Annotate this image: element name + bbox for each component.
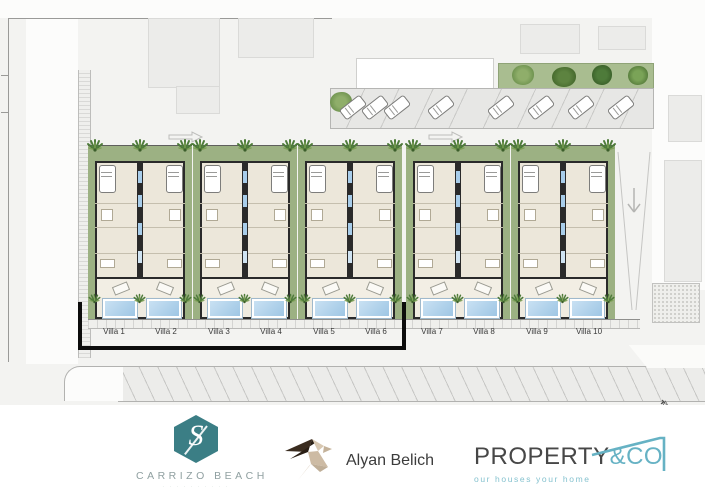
car-icon <box>204 165 221 193</box>
palm-tree-icon <box>496 293 511 308</box>
neighbor-building <box>668 95 702 142</box>
car-icon <box>309 165 326 193</box>
villa-label: Villa 9 <box>526 327 548 336</box>
neighbor-building <box>148 18 220 88</box>
villa-label: Villa 7 <box>421 327 443 336</box>
sun-lounger-icon <box>156 281 174 295</box>
tree-icon <box>512 65 534 85</box>
swimming-pool <box>357 299 391 318</box>
villa-label: Villa 3 <box>208 327 230 336</box>
car-icon <box>484 165 501 193</box>
neighbor-building <box>520 24 580 54</box>
sofa-icon <box>377 259 392 268</box>
branding-footer: S CARRIZO BEACH · · · · · · · · · · Alya… <box>0 405 705 498</box>
table-icon <box>101 209 113 221</box>
palm-tree-icon <box>555 293 570 308</box>
sofa-icon <box>418 259 433 268</box>
driveway-cut <box>612 345 705 368</box>
sun-lounger-icon <box>535 281 553 295</box>
sun-lounger-icon <box>217 281 235 295</box>
palm-tree-icon <box>85 138 105 158</box>
palm-tree-icon <box>87 293 102 308</box>
palm-tree-icon <box>598 138 618 158</box>
sun-lounger-icon <box>474 281 492 295</box>
palm-tree-icon <box>192 293 207 308</box>
swimming-pool <box>147 299 181 318</box>
sun-lounger-icon <box>261 281 279 295</box>
palm-tree-icon <box>405 293 420 308</box>
palm-tree-icon <box>237 293 252 308</box>
tree-icon <box>628 66 648 85</box>
car-icon <box>99 165 116 193</box>
alyan-belich-name: Alyan Belich <box>346 452 434 470</box>
party-wall <box>347 161 353 279</box>
palm-tree-icon <box>450 293 465 308</box>
villa-label: Villa 5 <box>313 327 335 336</box>
neighbor-building <box>664 160 702 282</box>
site-plan: Villa 1 Villa 2 Villa 3 Villa 4 Villa 5 … <box>0 0 705 405</box>
sun-lounger-icon <box>579 281 597 295</box>
car-icon <box>271 165 288 193</box>
palm-tree-icon <box>130 138 150 158</box>
palm-tree-icon <box>235 138 255 158</box>
neighbor-building <box>238 18 314 58</box>
table-icon <box>169 209 181 221</box>
car-icon <box>417 165 434 193</box>
palm-tree-icon <box>283 293 298 308</box>
left-road <box>26 18 78 364</box>
villa-duplex-block <box>298 145 402 319</box>
carrizo-subtext: · · · · · · · · · · <box>136 484 256 490</box>
palm-tree-icon <box>403 138 423 158</box>
villa-label: Villa 6 <box>365 327 387 336</box>
palm-tree-icon <box>385 138 405 158</box>
table-icon <box>419 209 431 221</box>
car-icon <box>589 165 606 193</box>
villa-label: Villa 1 <box>103 327 125 336</box>
alyan-belich-logo: Alyan Belich <box>284 437 434 485</box>
table-icon <box>206 209 218 221</box>
sofa-icon <box>523 259 538 268</box>
table-icon <box>311 209 323 221</box>
villa-label: Villa 2 <box>155 327 177 336</box>
site-boundary <box>78 302 82 350</box>
roof-outline-icon <box>590 433 680 475</box>
boundary-line-vertical <box>8 18 9 362</box>
site-plan-page: Villa 1 Villa 2 Villa 3 Villa 4 Villa 5 … <box>0 0 705 498</box>
sofa-icon <box>310 259 325 268</box>
neighbor-building <box>356 58 494 90</box>
party-wall <box>455 161 461 279</box>
neighbor-building <box>598 26 646 50</box>
driveway-ramp <box>616 150 652 320</box>
party-wall <box>242 161 248 279</box>
site-boundary <box>78 346 406 350</box>
sun-lounger-icon <box>112 281 130 295</box>
sidewalk <box>118 366 705 402</box>
table-icon <box>524 209 536 221</box>
palm-tree-icon <box>342 293 357 308</box>
palm-tree-icon <box>190 138 210 158</box>
villa-label: Villa 4 <box>260 327 282 336</box>
neighbor-building <box>176 86 220 114</box>
villa-duplex-block <box>406 145 510 319</box>
palm-tree-icon <box>448 138 468 158</box>
swimming-pool <box>465 299 499 318</box>
carrizo-name: CARRIZO BEACH <box>136 470 256 482</box>
carrizo-beach-logo: S CARRIZO BEACH · · · · · · · · · · <box>136 415 256 490</box>
car-icon <box>166 165 183 193</box>
table-icon <box>592 209 604 221</box>
palm-tree-icon <box>178 293 193 308</box>
sofa-icon <box>205 259 220 268</box>
palm-tree-icon <box>132 293 147 308</box>
palm-tree-icon <box>510 293 525 308</box>
party-wall <box>560 161 566 279</box>
sofa-icon <box>485 259 500 268</box>
paved-area <box>652 283 700 323</box>
boundary-tick <box>1 75 9 76</box>
sun-lounger-icon <box>430 281 448 295</box>
swimming-pool <box>570 299 604 318</box>
villa-duplex-block <box>88 145 192 319</box>
boundary-tick <box>1 112 9 113</box>
villa-duplex-block <box>193 145 297 319</box>
table-icon <box>274 209 286 221</box>
carrizo-monogram: S <box>174 419 218 453</box>
sofa-icon <box>590 259 605 268</box>
swimming-pool <box>252 299 286 318</box>
villa-duplex-block <box>511 145 615 319</box>
palm-tree-icon <box>340 138 360 158</box>
sun-lounger-icon <box>322 281 340 295</box>
sofa-icon <box>100 259 115 268</box>
top-margin <box>0 0 705 18</box>
palm-tree-icon <box>508 138 528 158</box>
sidewalk-corner <box>64 366 123 401</box>
palm-tree-icon <box>601 293 616 308</box>
property-co-logo: PROPERTY&CO our houses your home <box>474 443 663 484</box>
origami-bird-icon <box>284 437 338 485</box>
palm-tree-icon <box>553 138 573 158</box>
carrizo-hexagon-icon: S <box>174 415 218 463</box>
sun-lounger-icon <box>366 281 384 295</box>
property-tagline: our houses your home <box>474 474 663 484</box>
sofa-icon <box>167 259 182 268</box>
table-icon <box>379 209 391 221</box>
palm-tree-icon <box>295 138 315 158</box>
table-icon <box>487 209 499 221</box>
palm-tree-icon <box>297 293 312 308</box>
sofa-icon <box>272 259 287 268</box>
palm-tree-icon <box>388 293 403 308</box>
car-icon <box>376 165 393 193</box>
tree-icon <box>552 67 576 87</box>
villa-label: Villa 8 <box>473 327 495 336</box>
car-icon <box>522 165 539 193</box>
tree-icon <box>592 65 612 85</box>
villa-label: Villa 10 <box>576 327 602 336</box>
party-wall <box>137 161 143 279</box>
